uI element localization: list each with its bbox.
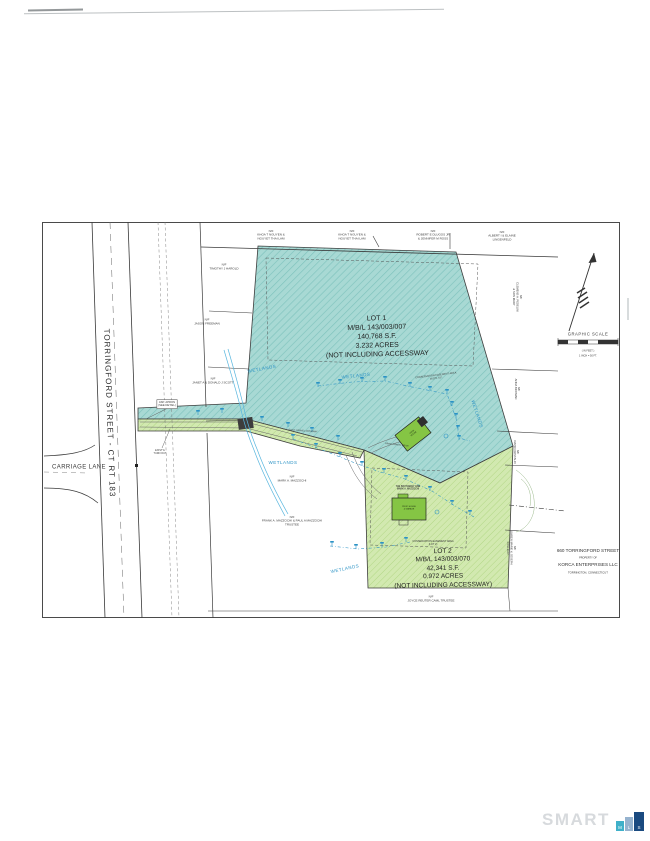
lot2-data-block: LOT 2 M/B/L 143/003/070 42,341 S.F. 0.97…: [394, 547, 492, 591]
carriage-lane-lines: [44, 445, 98, 503]
abutter-label: N/F ANNA BICKMAN: [514, 379, 521, 400]
north-arrow: [569, 253, 597, 331]
easement-label-lot2: CONSERVATION EASEMENT AREA (LOT 2): [412, 540, 453, 546]
abutter-label: N/F JASON FREEMAN: [194, 318, 220, 326]
graphic-scale-title: GRAPHIC SCALE: [568, 331, 608, 336]
smartmls-watermark-text: SMART: [542, 810, 610, 830]
neighbor-curves: [516, 470, 534, 532]
note-turnout: EXIST'G TURN OUT: [154, 449, 167, 455]
graphic-scale-ratio: 1 INCH = 50 FT.: [579, 354, 597, 357]
note-house2: PROP. HOUSE & GARAGE: [402, 506, 416, 511]
culvert-crossing: [237, 417, 253, 430]
scan-artifact-mark: [627, 298, 629, 320]
scanned-survey-page: TORRINGFORD STREET - CT RT 183 CARRIAGE …: [0, 0, 650, 841]
mls-block-m: M: [616, 821, 624, 831]
lot1-data-block: LOT 1 M/B/L 143/003/007 140,768 S.F. 3.2…: [325, 313, 429, 361]
graphic-scale-in-feet: ( IN FEET ): [582, 349, 595, 352]
scan-artifact-line: [24, 9, 444, 14]
site-plan-drawing: [42, 222, 620, 618]
title-block-town: TORRINGTON, CONNECTICUT: [568, 571, 608, 574]
abutter-label: N/F TIMOTHY J HAROLD: [209, 263, 238, 271]
abutter-label: N/F JOYCE REUTER CAML TRUSTEE: [407, 595, 454, 603]
abutter-label: N/F KHOA T NGUYEN & NGUYET THAI LAM: [338, 229, 365, 240]
wetlands-label: WETLANDS: [268, 460, 297, 466]
graphic-scale-bar: [558, 338, 618, 346]
street-label-carriage-lane: CARRIAGE LANE: [52, 464, 106, 472]
abutter-label: N/F KAREN MARIE & JOSEPH COLLELO: [506, 531, 516, 564]
smartmls-watermark-blocks: M L S: [616, 812, 646, 831]
mls-block-l: L: [625, 817, 633, 831]
title-block-property-of: PROPERTY OF: [579, 556, 597, 559]
abutter-label: N/F ROBERT E DLUGOS JR & JENNIFER M ROSS: [416, 229, 449, 240]
note-apron: ASP. APRON (SEE DETAIL): [157, 399, 178, 408]
abutter-label: N/F CLEMENS A. PEDELINI & SON MARY: [512, 282, 522, 312]
abutter-label: N/F ALBERT I & ELAINE LINGENFELD: [488, 230, 516, 241]
abutter-label: N/F DAVID CRISTALDI: [513, 440, 520, 463]
monument-marker: [135, 464, 138, 467]
title-block-address: 660 TORRINGFORD STREET: [557, 548, 619, 554]
abutter-label: N/F FRANK A. MAZZOCHI & PAUL A MAZZOCHI …: [262, 515, 322, 526]
abutter-label: N/F MARK A. MAZZOCHI: [278, 475, 307, 483]
abutter-label: N/F KHOA T NGUYEN & NGUYET THAI LAM: [257, 229, 284, 240]
abutter-label: N/F JANET A & DONALD J SCOTT: [192, 377, 233, 385]
title-block-owner: KORCA ENTERPRISES LLC: [558, 562, 617, 568]
scan-artifact-dark: [28, 9, 83, 12]
note-southerly-line: THE SOUTHERLY LINE MARK A. MAZZOCHI: [396, 485, 421, 491]
mls-block-s: S: [634, 812, 644, 831]
